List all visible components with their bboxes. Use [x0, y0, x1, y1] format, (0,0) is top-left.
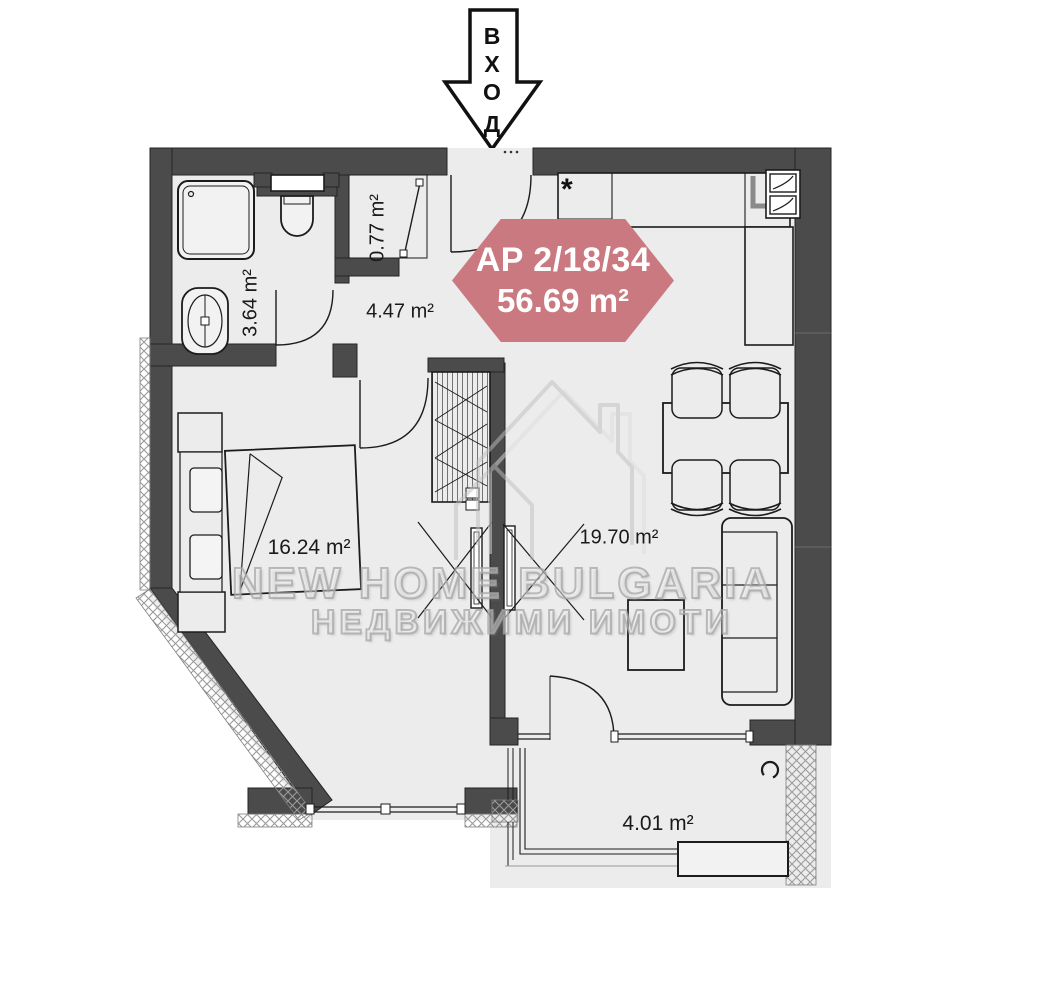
room-label-bathroom: 3.64 m²: [240, 269, 263, 337]
sink: [182, 288, 228, 354]
watermark-line2: НЕДВИЖИМИ ИМОТИ: [311, 604, 733, 643]
room-label-balcony: 4.01 m²: [622, 812, 693, 836]
chair: [729, 363, 781, 419]
room-label-bedroom: 16.24 m²: [268, 536, 351, 560]
nightstand: [178, 592, 225, 632]
kitchen-marker: *: [561, 173, 573, 206]
nightstand: [178, 413, 222, 452]
floor-plan-page: В Х О Д: [0, 0, 1038, 990]
wardrobe: [432, 372, 490, 510]
chair: [671, 460, 723, 516]
unit-number: AP 2/18/34: [476, 241, 651, 280]
chair: [729, 460, 781, 516]
entrance-threshold-dots: [504, 151, 519, 154]
planter-box: [678, 842, 788, 876]
chair: [671, 363, 723, 419]
room-label-storage: 0.77 m²: [367, 194, 390, 262]
room-label-hallway: 4.47 m²: [366, 301, 434, 324]
room-label-living-room: 19.70 m²: [580, 527, 659, 550]
watermark-line1: NEW HOME BULGARIA: [232, 559, 774, 609]
shower-cabin: [178, 181, 254, 259]
stove: [766, 170, 800, 218]
floor-plan-drawing: *: [0, 0, 1038, 990]
pillow: [190, 468, 222, 512]
unit-area: 56.69 m²: [497, 282, 629, 320]
pillow: [190, 535, 222, 579]
